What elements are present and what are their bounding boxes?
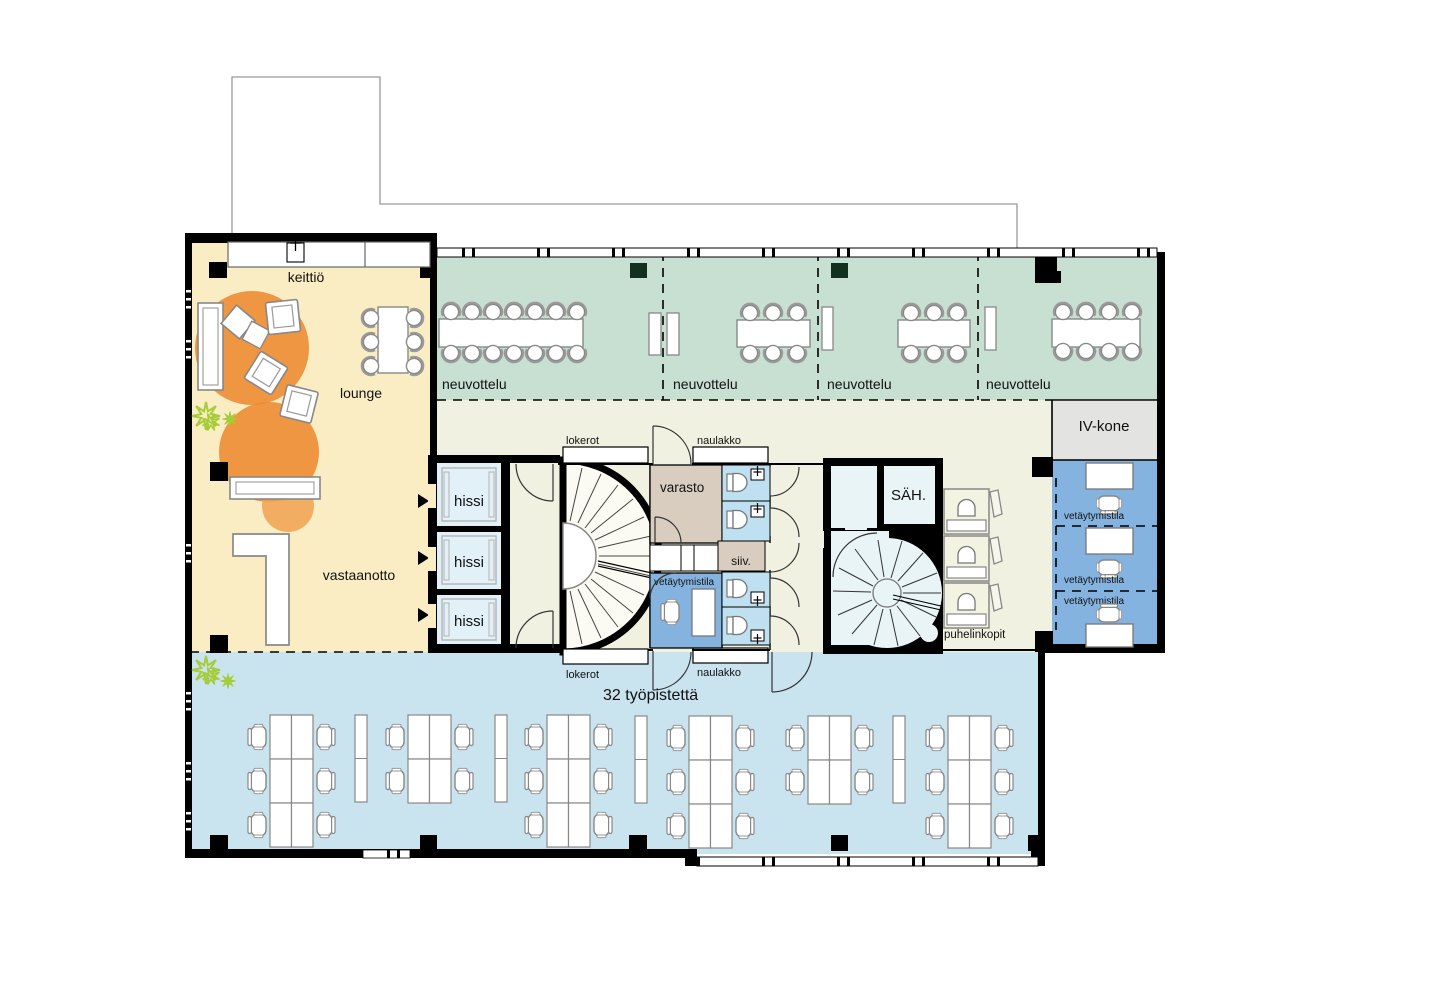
focus-label: vetäytymistila [1064, 575, 1124, 586]
focus-label: vetäytymistila [1064, 511, 1124, 522]
workstation-cluster-6 [926, 716, 1013, 848]
coat-rack-top [693, 447, 768, 463]
lockers-bottom-label: lokerot [566, 669, 599, 681]
chair-icon [661, 599, 679, 624]
desk-divider [635, 716, 647, 803]
meeting-room-label: neuvottelu [442, 376, 507, 392]
service-room [831, 466, 877, 528]
meeting-table [898, 320, 970, 347]
plant-icon [220, 673, 235, 688]
workstation-cluster-3 [525, 715, 612, 847]
focus-center-label: vetäytymistila [654, 577, 714, 588]
spiral-core: SÄH. [816, 458, 943, 654]
lounge-label: lounge [340, 385, 382, 401]
meeting-room-label: neuvottelu [986, 376, 1051, 392]
floor-plan-canvas: IV-kone neuvottelu neuvottelu neuvottelu [0, 0, 1441, 997]
phone-booths-label: puhelinkopit [944, 629, 1006, 641]
reception-label: vastaanotto [323, 567, 396, 583]
mid-lockers [650, 545, 718, 571]
desk-divider [495, 715, 507, 802]
kitchen-counter [228, 242, 430, 267]
exterior-outline [232, 77, 1017, 248]
elevator-2: hissi [437, 532, 501, 589]
open-office-label: 32 työpistettä [603, 687, 698, 704]
focus-room-center: vetäytymistila [650, 573, 722, 648]
lockers-bottom [563, 649, 648, 664]
floor-plan: IV-kone neuvottelu neuvottelu neuvottelu [0, 0, 1441, 997]
plant-icon [222, 411, 237, 426]
lockers-top-label: lokerot [566, 435, 599, 447]
coat-rack-top-label: naulakko [697, 435, 741, 447]
meeting-table [439, 319, 583, 347]
spiral-stair [832, 538, 942, 648]
kitchen-label: keittiö [288, 269, 325, 285]
desk [1086, 528, 1133, 554]
desk [1086, 463, 1133, 489]
elevator-3: hissi [437, 595, 501, 644]
workstation-cluster-1 [248, 715, 335, 847]
electrical-label: SÄH. [891, 487, 926, 504]
meeting-table [1052, 319, 1140, 347]
desk [1086, 624, 1133, 647]
sofa [198, 303, 223, 390]
storage-label: varasto [660, 480, 704, 495]
cleaning-label: siiv. [731, 554, 751, 568]
chair-icon [1096, 604, 1121, 622]
desk-divider [355, 715, 367, 802]
coat-rack-bottom-label: naulakko [697, 667, 741, 679]
bench [230, 477, 320, 499]
hvac-label: IV-kone [1079, 418, 1130, 435]
workstation-cluster-4 [667, 716, 754, 848]
elevator-label: hissi [454, 554, 484, 571]
lounge-table [362, 307, 423, 375]
meeting-room-label: neuvottelu [827, 376, 892, 392]
storage-room [650, 465, 722, 543]
elevator-label: hissi [454, 493, 484, 510]
desk [692, 589, 715, 636]
elevator-label: hissi [454, 613, 484, 630]
elevator-1: hissi [437, 463, 501, 526]
meeting-table [737, 320, 810, 347]
lockers-top [563, 447, 648, 463]
desk-divider [893, 716, 905, 803]
meeting-room-label: neuvottelu [673, 376, 738, 392]
